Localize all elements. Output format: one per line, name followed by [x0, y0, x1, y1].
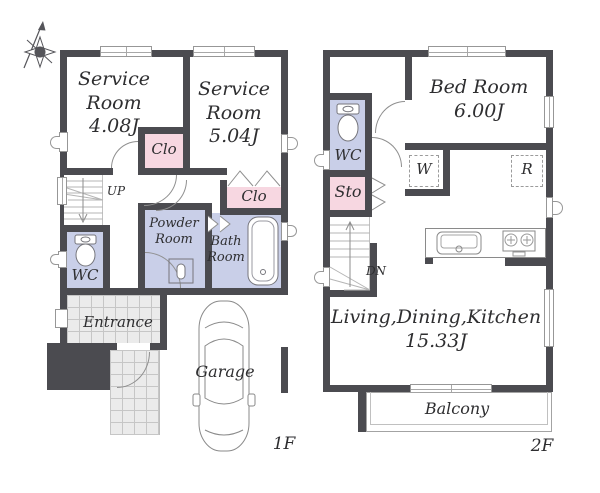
bifold-door-storage [371, 177, 387, 211]
wall [323, 290, 377, 297]
wall [405, 57, 412, 100]
refrigerator-space-label: R [511, 160, 543, 179]
window-pane-line [549, 290, 550, 346]
stairs-2f-treads [330, 217, 370, 290]
awning-window [314, 154, 324, 167]
window [323, 267, 330, 287]
wall [405, 189, 450, 196]
window [544, 96, 554, 128]
window [546, 197, 553, 218]
storage-label: Sto [328, 182, 368, 202]
ldk-label: Living,Dining,Kitchen 15.33J [324, 306, 548, 353]
stairs-dn-label: DN [360, 264, 392, 279]
window [428, 46, 506, 57]
stove-icon [502, 230, 536, 257]
wall [405, 143, 553, 150]
window-pane-line [549, 97, 550, 127]
toilet-icon [334, 103, 362, 143]
wc-2f-label: WC [328, 146, 368, 165]
window-pane-line [467, 47, 468, 56]
awning-window [553, 201, 563, 215]
balcony-label: Balcony [405, 399, 509, 419]
kitchen-sink-icon [436, 231, 482, 256]
window-pane-line [451, 385, 452, 392]
floor-plan: Service Room 4.08J Service Room 5.04J Cl… [0, 0, 600, 493]
wall [505, 258, 546, 266]
awning-window [314, 271, 324, 284]
door-arc [375, 101, 405, 133]
stairs-2f [330, 217, 370, 290]
floor-2-label: 2F [522, 436, 562, 457]
door-arc [372, 137, 402, 167]
bed-room-label: Bed Room 6.00J [413, 76, 545, 123]
wall [330, 210, 372, 217]
washer-space-label: W [409, 160, 439, 179]
floor-2-plan: Bed Room 6.00J WC Sto DN W R Living,Dini… [0, 0, 600, 493]
